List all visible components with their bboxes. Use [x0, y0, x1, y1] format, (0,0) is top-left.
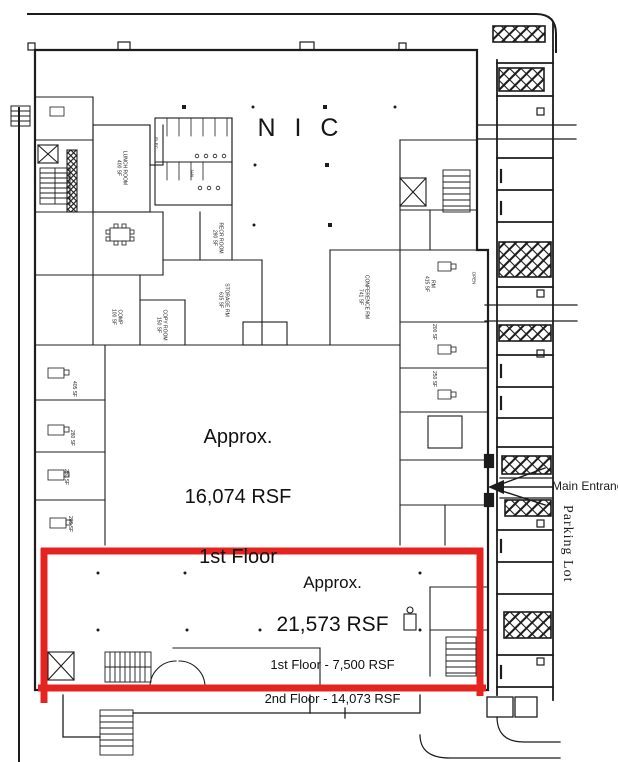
room-label-office-285: 285 SF	[66, 516, 72, 532]
room-label-jan-closet: JAN	[189, 169, 194, 178]
stair-icon	[443, 170, 470, 212]
room-label-open-tag: OPEN	[471, 272, 476, 285]
highlighted-area-line1: Approx.	[185, 573, 480, 593]
parking-lot-label: Parking Lot	[559, 505, 575, 583]
highlighted-area-line4: 2nd Floor - 14,073 RSF	[185, 691, 480, 706]
floor-plan-page: N I C Approx. 16,074 RSF 1st Floor Appro…	[0, 0, 618, 762]
stair-icon	[40, 168, 70, 204]
room-label-elec-closet: ELEC	[153, 137, 158, 149]
room-label-storage-room: STORAGE RM 615 SF	[218, 283, 229, 317]
main-area-line2: 16,074 RSF	[140, 482, 336, 512]
main-area-line1: Approx.	[140, 422, 336, 452]
highlighted-area-label: Approx. 21,573 RSF 1st Floor - 7,500 RSF…	[185, 555, 480, 724]
elevator-icon	[400, 178, 426, 206]
room-label-office-200: 200 SF	[430, 324, 436, 340]
room-label-office-280-b: 280 SF	[62, 469, 68, 485]
elevator-icon	[38, 145, 58, 163]
elevator-icon	[48, 652, 74, 680]
main-entrance-label: Main Entrance	[552, 480, 618, 494]
room-label-copy-room: COPY ROOM 150 SF	[156, 309, 167, 340]
room-label-office-280-a: 280 SF	[68, 430, 74, 446]
room-label-lunch-room: LUNCH ROOM 400 SF	[116, 151, 127, 185]
highlighted-area-line2: 21,573 RSF	[185, 612, 480, 638]
room-label-office-250: 250 SF	[430, 371, 436, 387]
stair-icon	[100, 710, 133, 755]
stair-icon	[105, 652, 151, 682]
room-label-comp-room: COMP 100 SF	[111, 309, 122, 325]
room-label-rm-415: RM 415 SF	[424, 276, 435, 292]
restroom-fixtures	[167, 118, 227, 190]
highlighted-area-line3: 1st Floor - 7,500 RSF	[185, 657, 480, 672]
room-label-conference-room: CONFERENCE RM 741 SF	[358, 275, 369, 319]
room-label-recr-room: RECR ROOM 280 SF	[212, 222, 223, 253]
parking-lot-stalls	[497, 22, 553, 700]
nic-label: N I C	[255, 114, 347, 143]
room-label-office-405: 405 SF	[70, 381, 76, 397]
